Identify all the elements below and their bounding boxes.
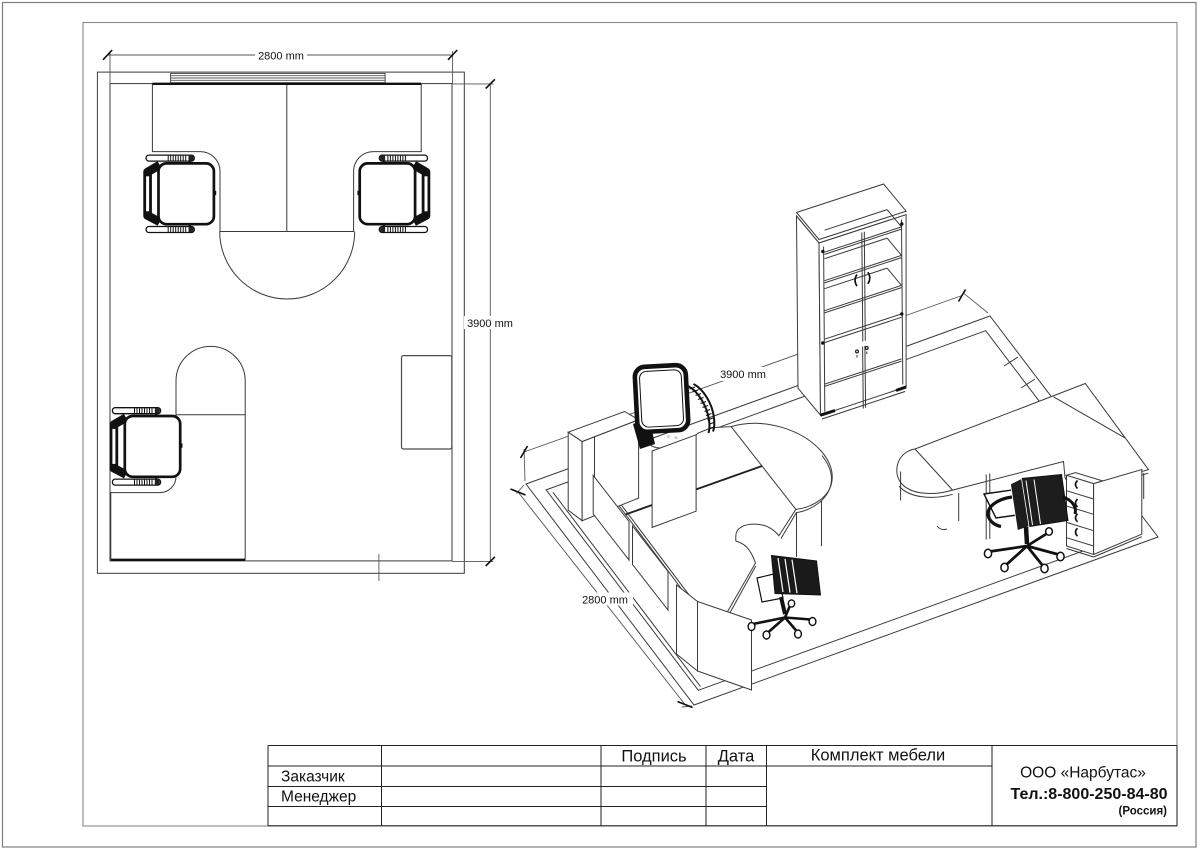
svg-text:3900 mm: 3900 mm: [467, 318, 513, 330]
svg-text:3900 mm: 3900 mm: [720, 369, 766, 381]
svg-text:2800 mm: 2800 mm: [582, 595, 628, 607]
svg-text:ООО «Нарбутас»: ООО «Нарбутас»: [1020, 765, 1146, 782]
svg-text:Дата: Дата: [718, 748, 755, 766]
svg-text:Комплект мебели: Комплект мебели: [811, 747, 946, 765]
svg-text:Менеджер: Менеджер: [281, 789, 356, 806]
svg-text:Заказчик: Заказчик: [281, 769, 345, 786]
svg-text:(Россия): (Россия): [1119, 806, 1168, 818]
svg-text:Подпись: Подпись: [621, 748, 686, 766]
svg-text:Тел.:8-800-250-84-80: Тел.:8-800-250-84-80: [1010, 786, 1167, 803]
svg-text:2800 mm: 2800 mm: [258, 50, 304, 62]
